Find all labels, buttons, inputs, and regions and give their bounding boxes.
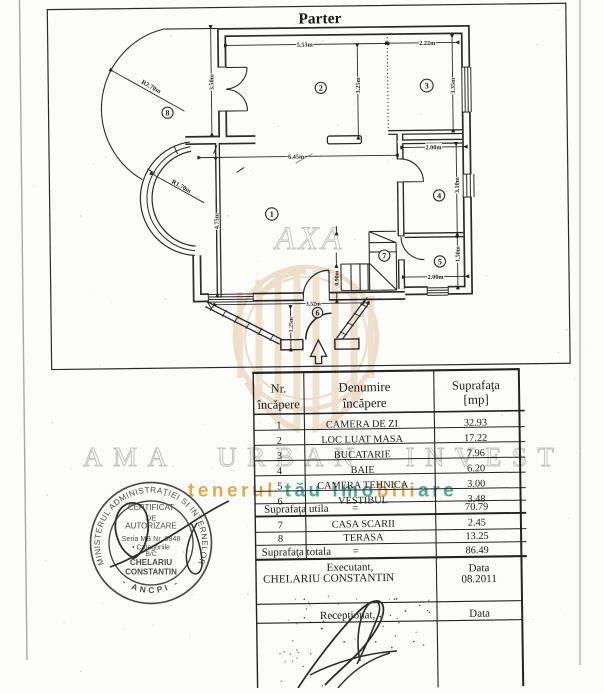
svg-text:Suprafaţa totala: Suprafaţa totala [262, 546, 332, 559]
svg-text:AXA: AXA [273, 221, 344, 257]
svg-text:BAIE: BAIE [350, 465, 374, 476]
svg-text:13.25: 13.25 [465, 531, 488, 542]
svg-text:Data: Data [469, 608, 490, 620]
svg-text:AMA URBAN INVEST: AMA URBAN INVEST [83, 442, 565, 472]
svg-text:TERASA: TERASA [343, 532, 384, 544]
svg-text:7.96: 7.96 [467, 448, 485, 459]
svg-text:7: 7 [278, 520, 283, 531]
svg-text:LOC LUAT MASA: LOC LUAT MASA [321, 434, 403, 446]
svg-text:4: 4 [437, 191, 441, 200]
svg-text:3: 3 [277, 451, 282, 462]
svg-text:2.22m: 2.22m [419, 40, 436, 47]
svg-text:=: = [353, 545, 359, 557]
svg-text:[mp]: [mp] [463, 392, 488, 407]
svg-text:5: 5 [438, 257, 442, 266]
svg-text:CHELARIU: CHELARIU [130, 558, 172, 567]
svg-text:Recepţionat,: Recepţionat, [320, 609, 376, 622]
svg-text:R1.70m: R1.70m [170, 179, 192, 196]
svg-text:5: 5 [277, 481, 282, 492]
svg-text:- ANCPI -: - ANCPI - [120, 576, 181, 595]
svg-text:VESTIBUL: VESTIBUL [338, 495, 388, 507]
svg-text:CONSTANTIN: CONSTANTIN [125, 568, 177, 577]
svg-text:CAMERA TEHNICA: CAMERA TEHNICA [317, 480, 409, 492]
svg-text:4.75m: 4.75m [213, 212, 220, 229]
svg-text:AUTORIZARE: AUTORIZARE [125, 522, 176, 531]
svg-text:5.53m: 5.53m [297, 42, 314, 49]
svg-text:BUCATARIE: BUCATARIE [334, 449, 391, 461]
svg-text:3: 3 [425, 81, 429, 90]
svg-text:3.50m: 3.50m [208, 73, 215, 90]
svg-text:32.93: 32.93 [464, 418, 487, 429]
svg-text:6.20: 6.20 [467, 463, 485, 474]
svg-text:1: 1 [270, 210, 274, 219]
svg-text:08.2011: 08.2011 [461, 573, 497, 585]
svg-text:3.35m: 3.35m [450, 77, 457, 94]
svg-text:Suprafaţa utila: Suprafaţa utila [264, 503, 329, 516]
svg-text:CHELARIU CONSTANTIN: CHELARIU CONSTANTIN [263, 572, 394, 586]
svg-text:3.25m: 3.25m [355, 77, 362, 94]
svg-text:=: = [352, 502, 358, 514]
svg-text:8: 8 [278, 534, 283, 545]
svg-text:R2.70m: R2.70m [140, 79, 162, 96]
svg-text:Suprafaţa: Suprafaţa [452, 378, 501, 393]
svg-text:2: 2 [319, 84, 323, 93]
svg-text:2.45: 2.45 [468, 517, 486, 528]
svg-text:70.79: 70.79 [465, 502, 488, 513]
svg-text:Parter: Parter [298, 10, 341, 28]
svg-text:4: 4 [277, 466, 282, 477]
svg-text:2.00m: 2.00m [428, 274, 445, 281]
svg-text:2.00m: 2.00m [425, 144, 442, 151]
svg-text:CERTIFICAT: CERTIFICAT [128, 503, 174, 512]
svg-text:2: 2 [277, 436, 282, 447]
svg-text:7: 7 [382, 251, 386, 260]
svg-text:8: 8 [165, 109, 169, 118]
svg-text:17.22: 17.22 [464, 433, 487, 444]
svg-text:1.50m: 1.50m [455, 245, 462, 262]
svg-text:3.00: 3.00 [467, 479, 485, 490]
svg-text:B/C: B/C [145, 551, 156, 558]
svg-text:86.49: 86.49 [466, 545, 489, 556]
svg-text:3.10m: 3.10m [454, 176, 461, 193]
svg-text:CASA SCARII: CASA SCARII [332, 519, 396, 531]
